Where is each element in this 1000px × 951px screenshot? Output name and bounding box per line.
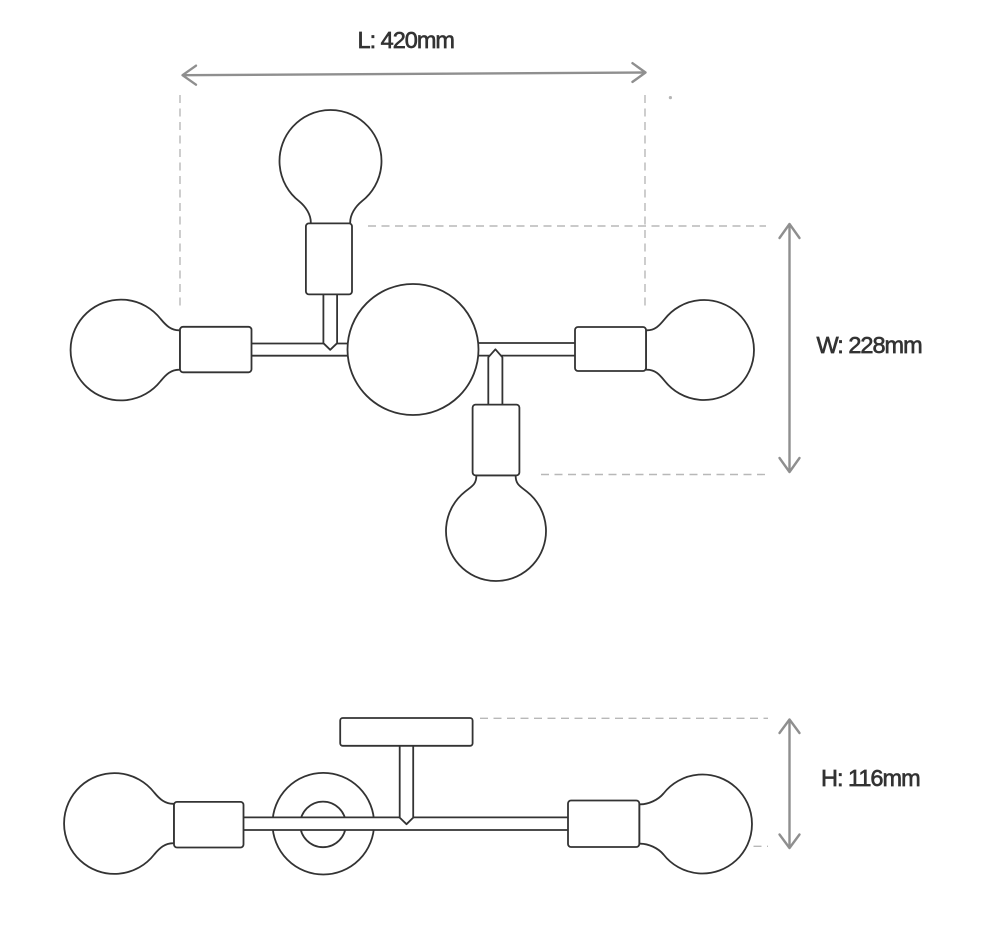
svg-text:L: 420mm: L: 420mm <box>358 27 455 53</box>
svg-text:W: 228mm: W: 228mm <box>817 332 923 358</box>
svg-text:H: 116mm: H: 116mm <box>821 765 920 791</box>
